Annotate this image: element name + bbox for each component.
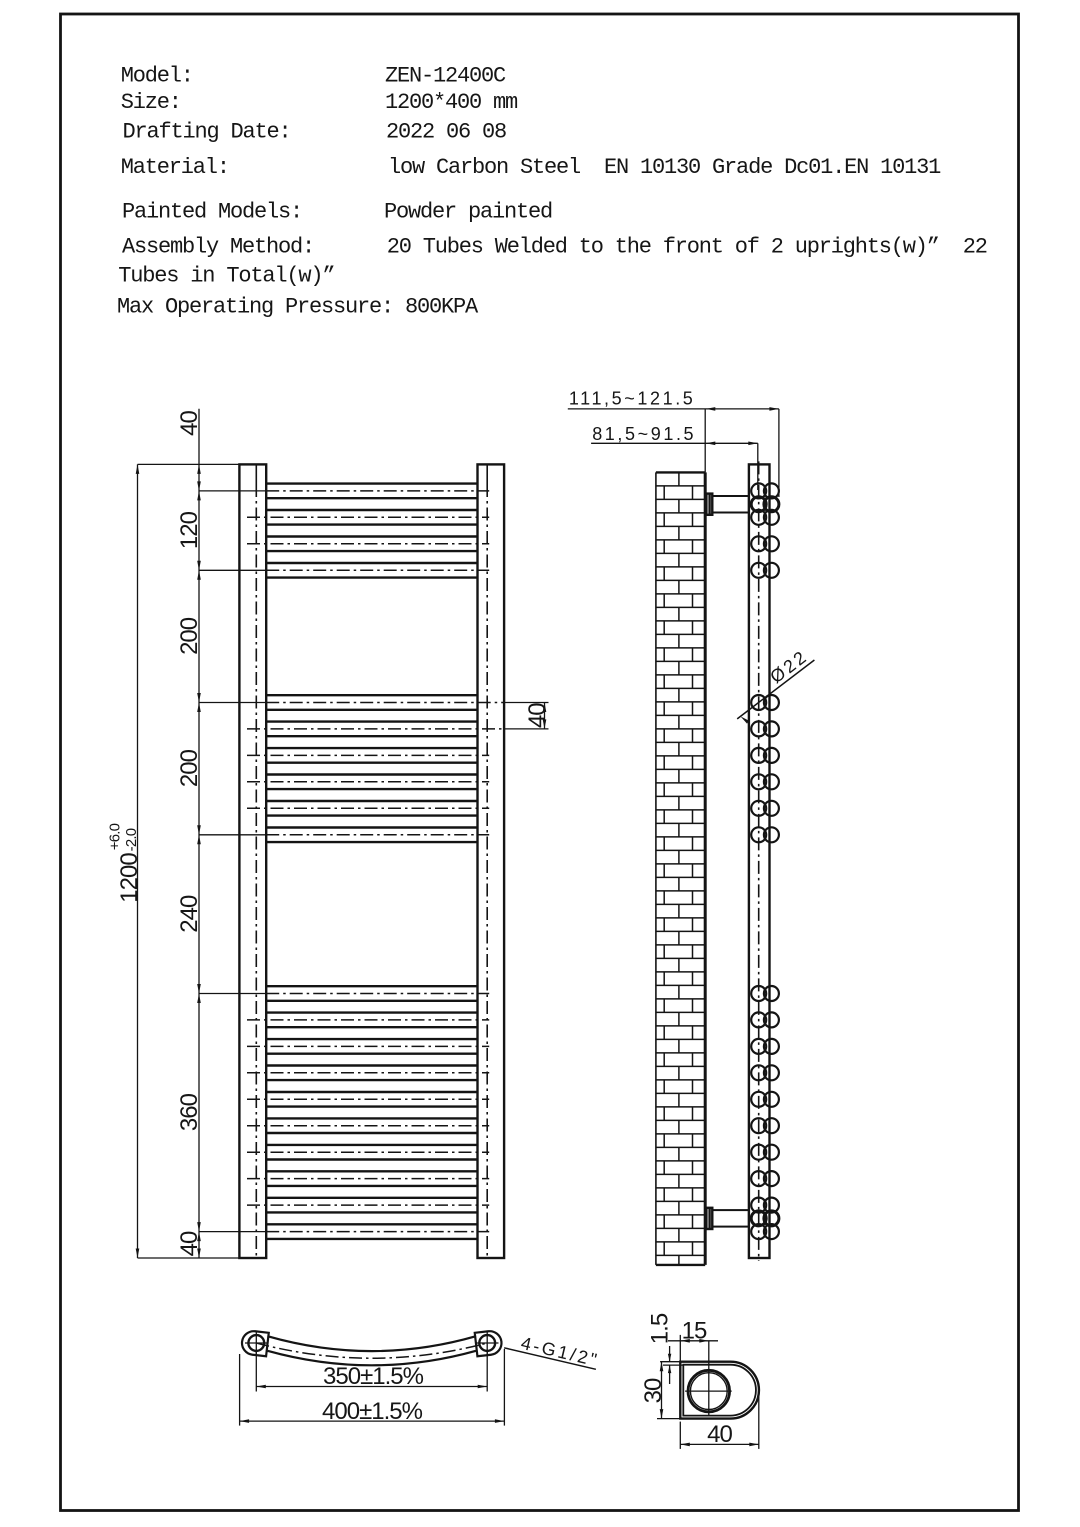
svg-text:240: 240	[176, 895, 203, 933]
svg-text:Model:: Model:	[121, 64, 193, 89]
svg-text:-2.0: -2.0	[123, 828, 140, 851]
svg-text:200: 200	[176, 749, 203, 787]
svg-text:1200*400 mm: 1200*400 mm	[385, 90, 518, 115]
svg-text:120: 120	[176, 511, 203, 549]
svg-text:81,5~91.5: 81,5~91.5	[592, 424, 696, 444]
svg-text:1.5: 1.5	[647, 1313, 674, 1344]
svg-text:+6.0: +6.0	[107, 823, 124, 850]
svg-text:40: 40	[176, 411, 203, 436]
svg-text:40: 40	[524, 703, 551, 728]
svg-text:ZEN-12400C: ZEN-12400C	[385, 64, 506, 89]
svg-text:Painted Models:: Painted Models:	[122, 200, 302, 225]
svg-text:15: 15	[682, 1318, 707, 1345]
svg-text:2022 06 08: 2022 06 08	[386, 120, 506, 145]
svg-text:Drafting Date:: Drafting Date:	[123, 120, 291, 145]
svg-text:1200: 1200	[116, 853, 143, 903]
svg-text:Max Operating Pressure: 800KPA: Max Operating Pressure: 800KPA	[117, 295, 479, 320]
svg-text:30: 30	[640, 1378, 667, 1403]
svg-text:40: 40	[176, 1231, 203, 1256]
svg-text:200: 200	[176, 617, 203, 655]
svg-text:350±1.5%: 350±1.5%	[323, 1363, 424, 1390]
svg-text:20 Tubes Welded to the front o: 20 Tubes Welded to the front of 2 uprigh…	[387, 235, 987, 260]
svg-text:400±1.5%: 400±1.5%	[322, 1398, 423, 1425]
svg-text:Size:: Size:	[121, 90, 181, 115]
svg-text:360: 360	[176, 1093, 203, 1131]
svg-text:Assembly Method:: Assembly Method:	[122, 235, 314, 260]
svg-text:low Carbon Steel EN 10130 Gra: low Carbon Steel EN 10130 Grade Dc01.EN …	[388, 155, 941, 180]
svg-text:111,5~121.5: 111,5~121.5	[569, 388, 696, 408]
svg-text:Tubes in Total(w)”: Tubes in Total(w)”	[118, 264, 334, 289]
svg-text:40: 40	[707, 1421, 732, 1448]
svg-text:Powder painted: Powder painted	[384, 200, 552, 225]
svg-text:Material:: Material:	[121, 155, 229, 180]
